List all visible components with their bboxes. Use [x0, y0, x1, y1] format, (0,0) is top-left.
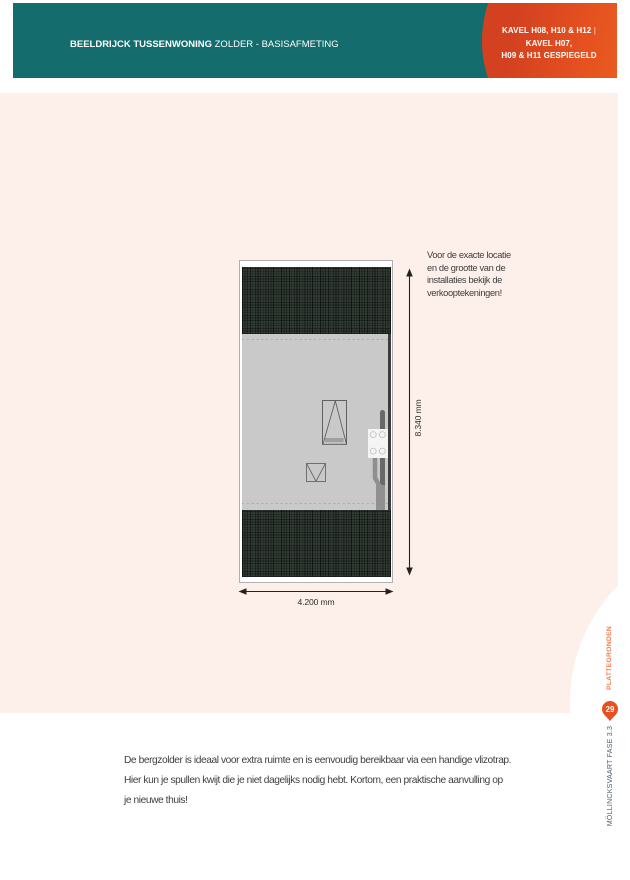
svg-text:29: 29 [606, 705, 615, 714]
